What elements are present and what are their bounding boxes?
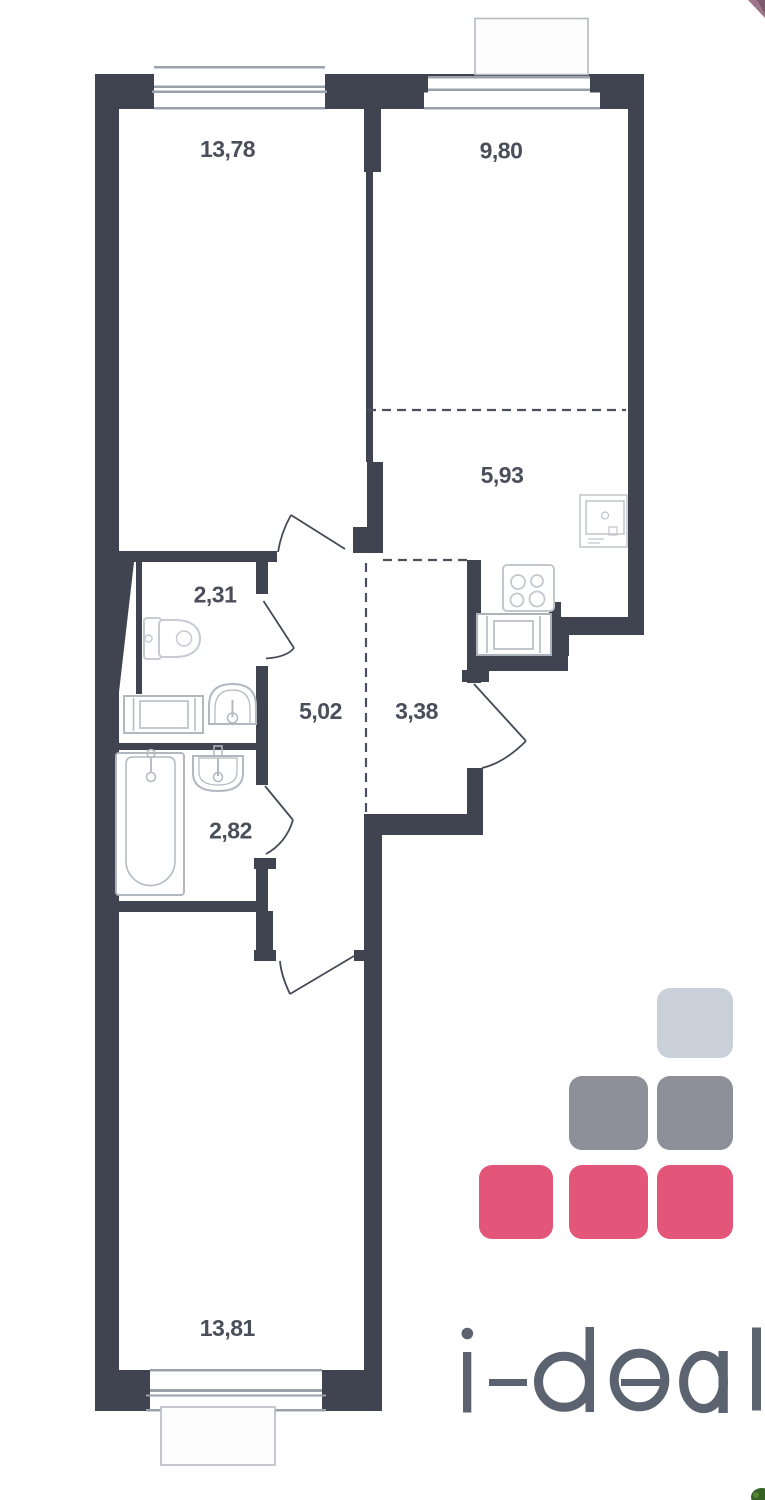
svg-text:3,38: 3,38 xyxy=(395,698,438,724)
svg-text:2,82: 2,82 xyxy=(209,818,252,844)
svg-text:13,78: 13,78 xyxy=(200,136,256,162)
svg-text:9,80: 9,80 xyxy=(480,138,523,164)
svg-text:5,93: 5,93 xyxy=(481,462,524,488)
svg-text:5,02: 5,02 xyxy=(299,698,342,724)
svg-text:13,81: 13,81 xyxy=(200,1315,256,1341)
svg-text:2,31: 2,31 xyxy=(194,582,237,608)
